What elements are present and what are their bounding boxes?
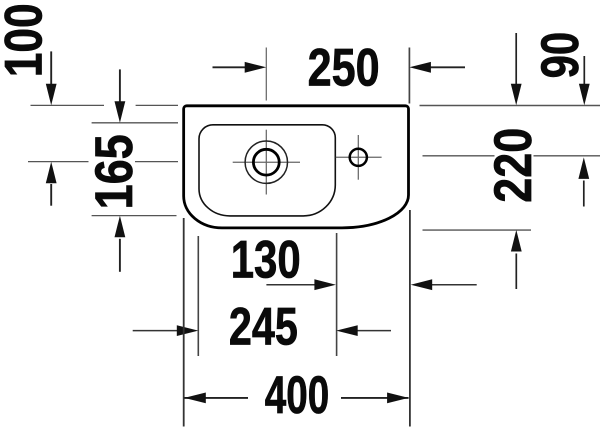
svg-text:100: 100: [0, 3, 54, 77]
svg-text:220: 220: [484, 128, 543, 203]
svg-text:245: 245: [229, 298, 298, 357]
svg-text:165: 165: [85, 134, 144, 209]
svg-text:90: 90: [531, 32, 590, 79]
svg-text:400: 400: [265, 366, 330, 425]
svg-text:250: 250: [308, 39, 380, 98]
svg-text:130: 130: [231, 230, 301, 289]
